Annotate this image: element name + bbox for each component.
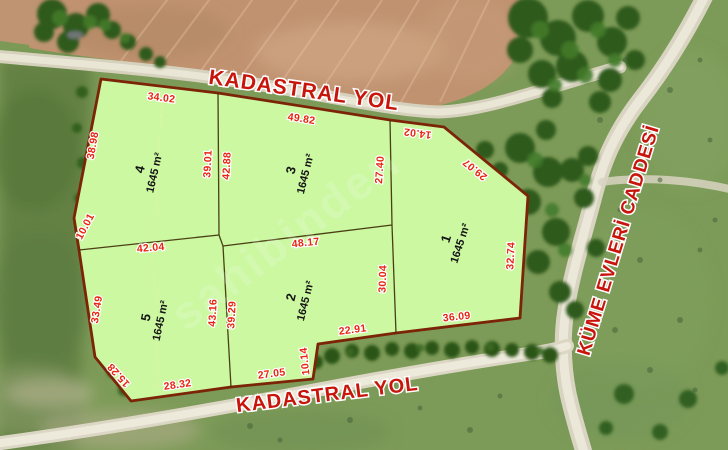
dim-p2-left: 39.29: [225, 301, 238, 329]
dim-p2-right: 30.04: [377, 265, 390, 293]
dim-p3-left: 42.88: [220, 152, 233, 180]
aerial-map-image: sahibinden 4 1645 m² 3 1645 m² 1 1645 m²…: [0, 0, 728, 450]
dim-p4-right: 39.01: [201, 150, 214, 178]
dim-p5-top: 42.04: [136, 241, 165, 255]
dim-p3-right: 27.40: [373, 156, 387, 185]
dim-p1-right: 32.74: [504, 242, 517, 270]
dim-p5-right: 43.16: [206, 299, 219, 327]
flower-patch: [67, 31, 83, 39]
cadastral-map-screenshot: sahibinden 4 1645 m² 3 1645 m² 1 1645 m²…: [0, 0, 728, 450]
